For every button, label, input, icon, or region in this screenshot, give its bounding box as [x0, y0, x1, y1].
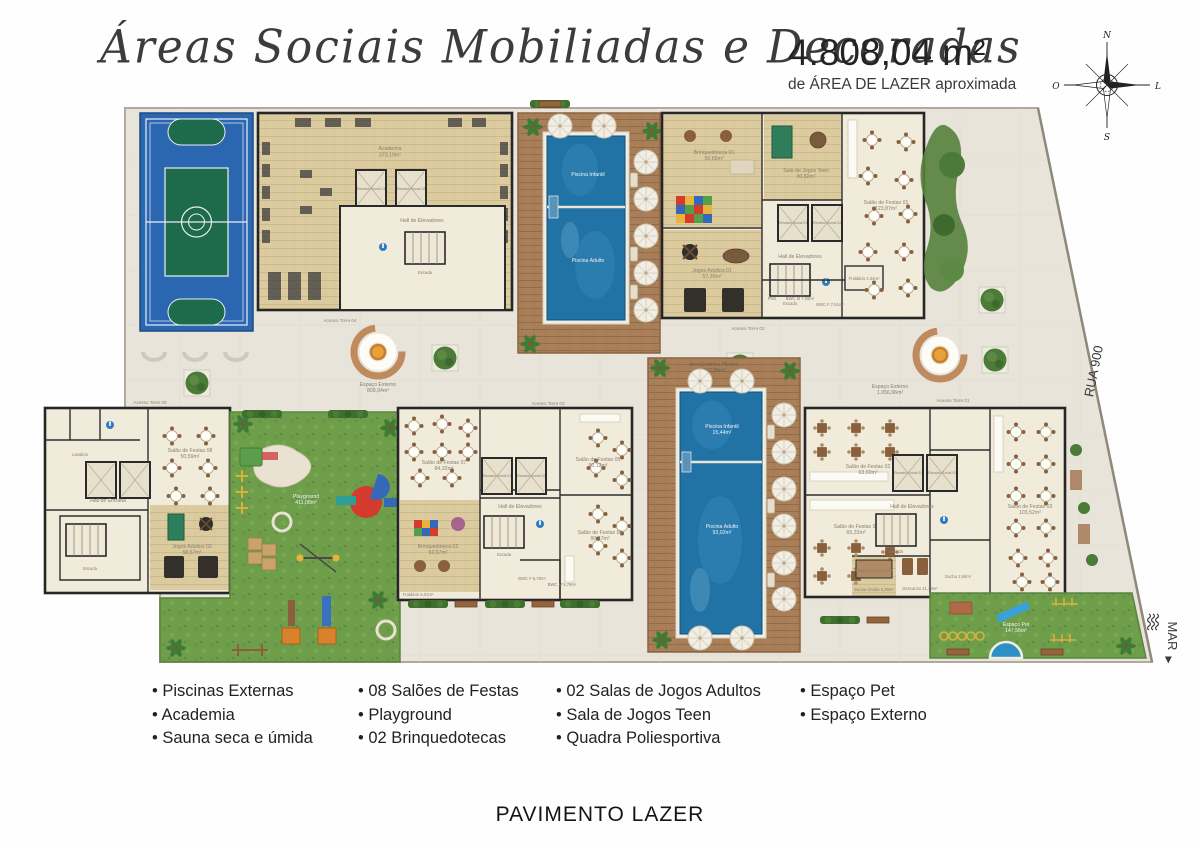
acesso-torre-05: Acesso Torre 05 — [133, 400, 167, 405]
elevator-1-label: Elevador Social 01 — [357, 187, 385, 191]
legend-item: 02 Salas de Jogos Adultos — [556, 680, 761, 704]
hall-label: Hall de Elevadores — [498, 504, 542, 510]
bwc-m-label: BWC M 7,08m² — [786, 296, 815, 301]
bwc-f2-label: BWC F 5,78m² — [518, 576, 546, 581]
accessible-icon — [822, 278, 830, 286]
acesso-torre-03: Acesso Torre 03 — [531, 401, 565, 406]
legend-item: Quadra Poliesportiva — [556, 727, 761, 751]
page: Elevador Social 01 Elevador Social 02 Es… — [0, 0, 1200, 848]
academia-label: Academia373,19m² — [378, 146, 401, 159]
legend-column-3: 02 Salas de Jogos Adultos Sala de Jogos … — [556, 680, 761, 751]
compass-icon: N L S O — [1052, 31, 1161, 143]
tree — [982, 347, 1008, 373]
building-southeast: Salão de Festas 0263,60m² Salão de Festa… — [805, 408, 1065, 597]
pool-area-south: Área Externa Piscina412,28m² Piscina Inf… — [648, 358, 800, 652]
elevator-2-label: Elevador Social 02 — [397, 187, 425, 191]
hall-label: Hall de Elevadores — [890, 504, 934, 510]
planter — [242, 410, 282, 418]
legend-item: Sala de Jogos Teen — [556, 704, 761, 728]
compass-n: N — [1102, 31, 1112, 41]
tree — [979, 287, 1005, 313]
compass-s: S — [1104, 133, 1110, 143]
lavabos-label: Lavabos — [72, 452, 88, 457]
elevator-2-label: Elevador Social 02 — [517, 474, 545, 478]
sauna-umida-label: Sauna Úmida 6,39m² — [854, 587, 894, 592]
acesso-torre-02: Acesso Torre 02 — [731, 326, 765, 331]
legend-item: Espaço Pet — [800, 680, 927, 704]
espaco-pet-label: Espaço Pet147,56m² — [1003, 622, 1030, 634]
stairs — [484, 516, 524, 548]
acesso-torre-04: Acesso Torre 04 — [323, 318, 357, 323]
plan-title: PAVIMENTO LAZER — [0, 803, 1200, 827]
sea-label: MAR — [1165, 622, 1180, 651]
legend-item: Sauna seca e úmida — [152, 727, 313, 751]
stairs-label: Escada — [783, 301, 798, 306]
fraldario2-label: Fraldário 5,01m² — [403, 592, 434, 597]
building-southwest: Lavabos Hall de Entrada Escada Salão de … — [45, 400, 230, 593]
ducha-label: Ducha 2,94m² — [945, 574, 972, 579]
pet-steps — [950, 602, 972, 614]
sea-marker: MAR ▶ — [1148, 614, 1181, 664]
pne-label: PNE — [768, 296, 777, 301]
gym-stairs — [405, 232, 445, 264]
stairs-label: Escada — [889, 549, 904, 554]
elevator-2-label: Elevador Social 02 — [813, 221, 841, 225]
legend-item: 08 Salões de Festas — [358, 680, 519, 704]
area-value: 4.808,04 m² — [788, 32, 1018, 74]
pool-infantil-label: Piscina Infantil — [571, 172, 604, 178]
acesso-torre-01: Acesso Torre 01 — [936, 398, 970, 403]
legend-item: 02 Brinquedotecas — [358, 727, 519, 751]
pet-area: Espaço Pet147,56m² — [930, 593, 1146, 658]
sports-court — [140, 113, 253, 331]
tree — [184, 370, 210, 396]
elevator-2-label: Elevador Social 02 — [928, 471, 956, 475]
building-northeast: Brinquedoteca 0150,66m² Sala de Jogos Te… — [662, 113, 924, 331]
sea-arrow-icon: ▶ — [1164, 657, 1174, 664]
fraldario-label: Fraldário 4,34m² — [849, 276, 880, 281]
elevator-1-label: Elevador Social 01 — [483, 474, 511, 478]
espaco-externo-east-label: Espaço Externo1.056,96m² — [872, 384, 909, 396]
playground-label: Playground411,08m² — [293, 494, 319, 506]
compass-e: L — [1154, 82, 1161, 92]
accessible-icon — [536, 520, 544, 528]
bench — [539, 101, 561, 107]
legend-column-1: Piscinas Externas Academia Sauna seca e … — [152, 680, 313, 751]
elevator-1-label: Elevador Social 01 — [779, 221, 807, 225]
bwc-m2-label: BWC M 5,76m² — [548, 582, 577, 587]
stairs-label: Escada — [418, 270, 433, 275]
legend-item: Piscinas Externas — [152, 680, 313, 704]
elevator-1 — [86, 462, 116, 498]
building-academia: Elevador Social 01 Elevador Social 02 Es… — [258, 113, 512, 323]
accessible-icon — [940, 516, 948, 524]
sauna-seca-label: Sauna Seca 7,28m² — [855, 568, 893, 573]
area-caption: de ÁREA DE LAZER aproximada — [788, 76, 1018, 94]
play-mat — [414, 520, 438, 536]
stairs-label: Escada — [497, 552, 512, 557]
planter — [328, 410, 368, 418]
pool-adulto-label: Piscina Adulto — [572, 258, 605, 264]
legend-column-2: 08 Salões de Festas Playground 02 Brinqu… — [358, 680, 519, 751]
hall-entrada-label: Hall de Entrada — [90, 498, 126, 504]
page-title: Áreas Sociais Mobiliadas e Decoradas — [100, 21, 790, 75]
area-stat: 4.808,04 m² de ÁREA DE LAZER aproximada — [788, 32, 1018, 94]
room-salao-02: Salão de Festas 0263,60m² — [810, 419, 899, 481]
bwc-f-label: BWC F 7,51m² — [816, 302, 844, 307]
descanso-label: Descanso 21,79m² — [902, 586, 938, 591]
pool-area-north: Piscina Infantil Piscina Adulto — [518, 113, 662, 354]
legend-item: Academia — [152, 704, 313, 728]
pool-ladder — [682, 452, 691, 472]
bench — [947, 649, 969, 655]
elevator-1-label: Elevador Social 01 — [894, 471, 922, 475]
accessible-icon — [379, 243, 387, 251]
gym-hall-label: Hall de Elevadores — [400, 218, 444, 224]
play-mat — [676, 196, 712, 223]
building-south-center: Salão de Festas 0784,32m² Salão de Festa… — [398, 401, 632, 600]
legend-item: Playground — [358, 704, 519, 728]
tree — [432, 345, 458, 371]
stairs-label: Escada — [83, 566, 98, 571]
stairs — [66, 524, 106, 556]
legend-item: Espaço Externo — [800, 704, 927, 728]
stairs — [876, 514, 916, 546]
bench — [1041, 649, 1063, 655]
compass-w: O — [1052, 82, 1060, 92]
hall-label: Hall de Elevadores — [778, 254, 822, 260]
elevator-2 — [120, 462, 150, 498]
legend-column-4: Espaço Pet Espaço Externo — [800, 680, 927, 727]
pool-ladder — [549, 196, 558, 218]
accessible-icon — [106, 421, 114, 429]
waves-icon — [1148, 614, 1159, 630]
